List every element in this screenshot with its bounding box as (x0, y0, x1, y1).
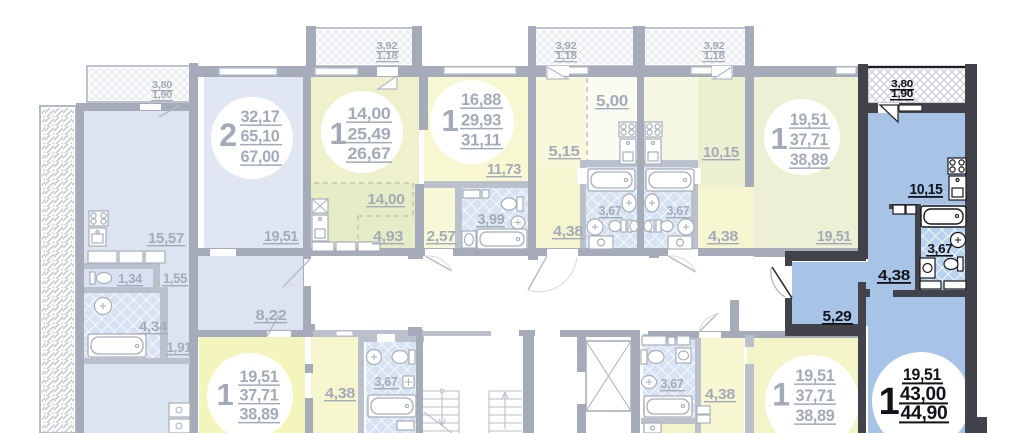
svg-text:19,51: 19,51 (790, 110, 828, 129)
svg-text:4,93: 4,93 (373, 229, 403, 245)
svg-text:38,89: 38,89 (240, 405, 279, 424)
svg-text:4,38: 4,38 (325, 386, 355, 402)
svg-text:37,71: 37,71 (790, 130, 828, 149)
svg-text:8,22: 8,22 (256, 308, 287, 324)
svg-text:38,89: 38,89 (790, 150, 828, 169)
svg-text:19,51: 19,51 (903, 365, 941, 384)
svg-text:19,51: 19,51 (796, 366, 835, 385)
svg-text:31,11: 31,11 (461, 131, 501, 150)
svg-text:37,71: 37,71 (240, 386, 279, 405)
svg-text:3,67: 3,67 (375, 374, 398, 389)
svg-text:1,90: 1,90 (891, 88, 914, 100)
svg-text:1,18: 1,18 (556, 51, 578, 62)
svg-text:3,67: 3,67 (667, 204, 690, 218)
svg-text:1: 1 (217, 377, 234, 412)
svg-text:16,88: 16,88 (461, 90, 501, 109)
svg-text:3,67: 3,67 (928, 241, 953, 256)
svg-text:29,93: 29,93 (461, 111, 501, 130)
svg-text:4,38: 4,38 (553, 224, 583, 240)
svg-text:5,15: 5,15 (549, 144, 580, 160)
svg-text:3,67: 3,67 (599, 204, 622, 218)
svg-text:38,89: 38,89 (796, 406, 835, 425)
svg-text:26,67: 26,67 (348, 144, 391, 163)
svg-text:67,00: 67,00 (241, 147, 280, 166)
svg-text:1,91: 1,91 (167, 340, 193, 355)
svg-text:3,99: 3,99 (478, 212, 505, 228)
svg-text:37,71: 37,71 (796, 386, 835, 405)
svg-text:14,00: 14,00 (368, 192, 405, 208)
svg-text:1: 1 (771, 121, 788, 156)
svg-text:4,38: 4,38 (708, 229, 738, 245)
svg-text:4,38: 4,38 (705, 387, 735, 403)
svg-text:1: 1 (879, 381, 900, 423)
svg-text:14,00: 14,00 (348, 104, 391, 123)
svg-text:1: 1 (442, 103, 459, 138)
svg-text:25,49: 25,49 (348, 125, 391, 144)
svg-text:10,15: 10,15 (910, 181, 943, 198)
svg-text:1,34: 1,34 (118, 271, 143, 286)
svg-text:4,38: 4,38 (878, 267, 910, 284)
svg-text:19,51: 19,51 (240, 367, 279, 386)
svg-text:44,90: 44,90 (901, 402, 948, 424)
svg-text:1,18: 1,18 (377, 51, 399, 62)
svg-text:4,34: 4,34 (139, 319, 168, 334)
svg-text:10,15: 10,15 (703, 145, 739, 161)
svg-text:2,57: 2,57 (427, 229, 456, 245)
svg-text:32,17: 32,17 (241, 107, 280, 126)
svg-text:11,73: 11,73 (487, 162, 521, 178)
svg-text:1,55: 1,55 (163, 271, 188, 286)
svg-text:19,51: 19,51 (264, 229, 298, 245)
svg-text:1: 1 (330, 116, 347, 151)
svg-text:5,29: 5,29 (823, 308, 852, 325)
svg-text:65,10: 65,10 (241, 127, 280, 146)
svg-text:3,67: 3,67 (661, 376, 684, 391)
svg-text:1: 1 (772, 377, 790, 413)
svg-text:5,00: 5,00 (596, 93, 628, 110)
svg-text:1,90: 1,90 (152, 90, 173, 101)
svg-text:19,51: 19,51 (817, 229, 851, 245)
svg-text:2: 2 (219, 117, 237, 153)
svg-text:1,18: 1,18 (704, 51, 726, 62)
svg-text:15,57: 15,57 (148, 230, 184, 247)
